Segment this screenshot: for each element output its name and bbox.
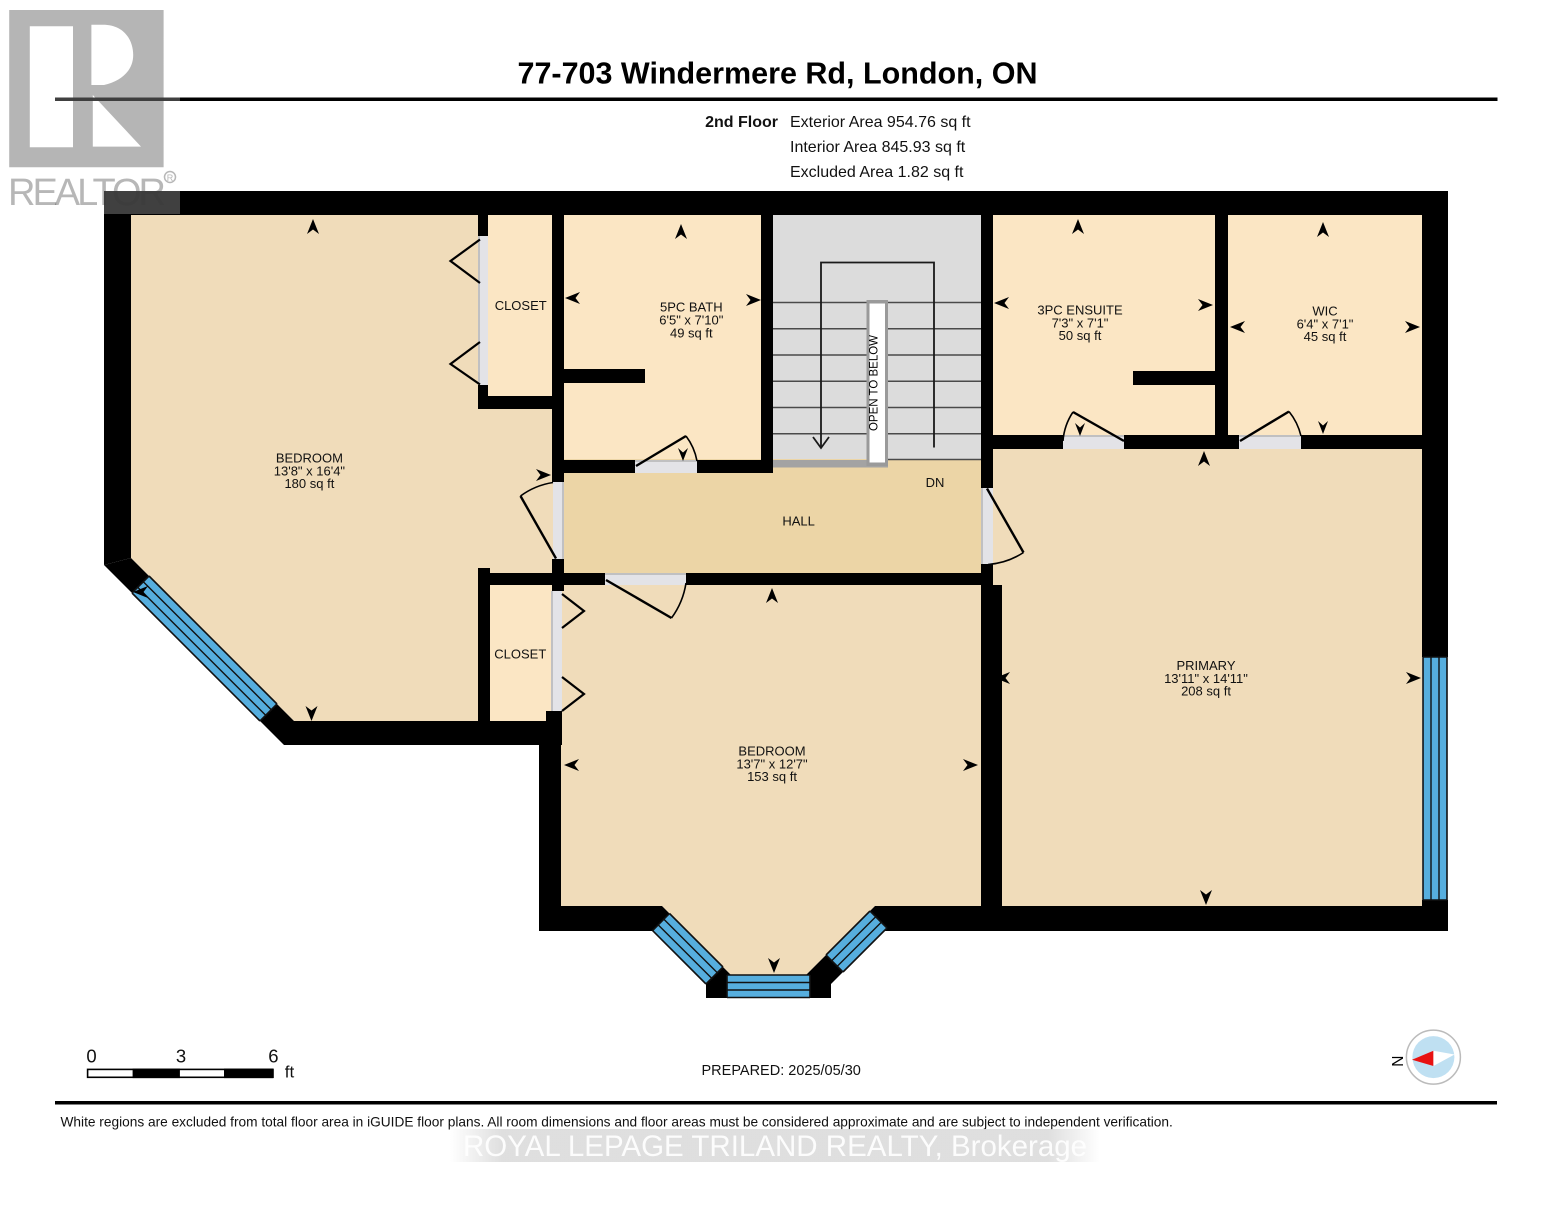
svg-text:49 sq ft: 49 sq ft [670, 325, 713, 340]
svg-text:Excluded Area 1.82 sq ft: Excluded Area 1.82 sq ft [790, 164, 964, 181]
svg-text:CLOSET: CLOSET [495, 298, 547, 313]
svg-text:208 sq ft: 208 sq ft [1181, 684, 1231, 699]
svg-text:3: 3 [176, 1046, 186, 1067]
svg-text:153 sq ft: 153 sq ft [747, 769, 797, 784]
svg-text:CLOSET: CLOSET [494, 647, 546, 662]
svg-text:ft: ft [285, 1063, 295, 1082]
svg-text:Interior Area 845.93 sq ft: Interior Area 845.93 sq ft [790, 139, 966, 156]
svg-text:ROYAL LEPAGE TRILAND REALTY, B: ROYAL LEPAGE TRILAND REALTY, Brokerage [463, 1130, 1087, 1163]
svg-text:PREPARED: 2025/05/30: PREPARED: 2025/05/30 [702, 1063, 861, 1079]
svg-text:REALTOR: REALTOR [8, 172, 166, 214]
svg-text:R: R [167, 173, 174, 183]
svg-text:2nd Floor: 2nd Floor [705, 114, 778, 131]
svg-text:HALL: HALL [782, 514, 815, 529]
svg-text:50 sq ft: 50 sq ft [1059, 328, 1102, 343]
svg-text:6: 6 [268, 1046, 278, 1067]
svg-text:DN: DN [926, 475, 945, 490]
svg-text:N: N [1390, 1056, 1407, 1067]
svg-text:OPEN TO BELOW: OPEN TO BELOW [869, 335, 881, 431]
svg-text:White regions are excluded fro: White regions are excluded from total fl… [61, 1115, 1173, 1130]
svg-text:77-703 Windermere Rd, London,: 77-703 Windermere Rd, London, ON [517, 57, 1037, 91]
svg-text:180 sq ft: 180 sq ft [284, 476, 334, 491]
svg-text:0: 0 [86, 1046, 96, 1067]
svg-text:45 sq ft: 45 sq ft [1304, 329, 1347, 344]
svg-text:Exterior Area 954.76 sq ft: Exterior Area 954.76 sq ft [790, 114, 971, 131]
